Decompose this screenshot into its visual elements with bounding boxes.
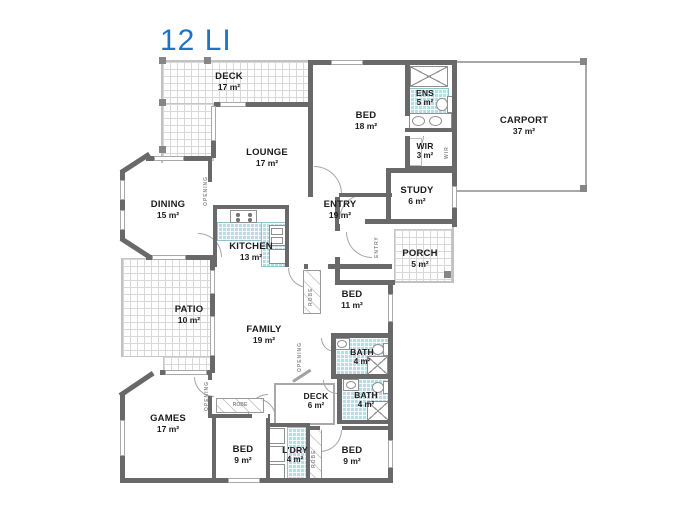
- wall: [212, 414, 216, 483]
- wall: [308, 65, 313, 197]
- kitchen-sink: [271, 228, 283, 235]
- post: [204, 57, 211, 64]
- sink: [412, 116, 425, 126]
- porch-edge: [452, 227, 454, 282]
- opening-text: OPENING: [297, 340, 303, 372]
- room-label-deck17: DECK17 m²: [215, 72, 243, 92]
- sink: [337, 340, 347, 348]
- room-label-carport: CARPORT37 m²: [500, 116, 548, 136]
- robe-text: ROBE: [308, 280, 314, 306]
- window: [120, 180, 125, 200]
- robe-text: ROBE: [311, 442, 317, 468]
- window: [152, 255, 186, 260]
- wall: [405, 136, 410, 170]
- wall: [335, 280, 395, 285]
- plan-title: 12 LI: [160, 24, 232, 58]
- window: [452, 186, 457, 208]
- post: [444, 271, 451, 278]
- sink: [346, 381, 356, 389]
- robe-text: ROBE: [227, 402, 253, 408]
- shower: [410, 66, 448, 87]
- door-swing: [320, 430, 342, 452]
- post: [580, 58, 587, 65]
- room-label-bath1: BATH4 m²: [350, 348, 374, 366]
- room-label-bath2: BATH4 m²: [354, 391, 378, 409]
- wall: [405, 128, 452, 132]
- window: [331, 60, 363, 65]
- room-label-ens: ENS5 m²: [416, 89, 434, 107]
- room-label-bed11: BED11 m²: [341, 290, 363, 310]
- door-gap: [335, 231, 340, 257]
- wall: [331, 338, 336, 378]
- post: [159, 146, 166, 153]
- wall: [266, 423, 310, 427]
- wall: [285, 209, 289, 267]
- room-label-games: GAMES17 m²: [150, 414, 186, 434]
- window: [120, 210, 125, 230]
- window: [210, 270, 215, 294]
- window: [154, 156, 184, 161]
- room-label-deck6: DECK6 m²: [304, 392, 329, 410]
- room-label-kitchen: KITCHEN13 m²: [229, 242, 273, 262]
- window: [120, 420, 125, 456]
- wall: [386, 168, 452, 173]
- wall: [211, 140, 216, 158]
- door-gap: [308, 264, 328, 269]
- wall: [213, 209, 217, 267]
- door-gap: [313, 193, 339, 197]
- post: [580, 185, 587, 192]
- floor-plan: 12 LI: [0, 0, 690, 517]
- wall: [405, 63, 410, 116]
- bay-wall: [120, 152, 151, 175]
- deck-edge: [161, 60, 311, 62]
- door-gap: [252, 414, 268, 418]
- bay-wall: [120, 236, 151, 259]
- room-label-entry: ENTRY19 m²: [324, 200, 357, 220]
- room-label-patio: PATIO10 m²: [175, 305, 204, 325]
- wall: [337, 420, 391, 424]
- entry-hall-text: ENTRY: [374, 232, 380, 258]
- room-label-lounge: LOUNGE17 m²: [246, 148, 288, 168]
- room-label-porch: PORCH5 m²: [402, 249, 437, 269]
- post: [159, 57, 166, 64]
- games-bay-wall: [119, 371, 155, 398]
- opening-text: OPENING: [204, 377, 210, 411]
- window: [220, 102, 246, 107]
- wall: [331, 333, 391, 338]
- window: [165, 370, 207, 375]
- stove: [230, 210, 257, 223]
- room-label-bed18: BED18 m²: [355, 111, 377, 131]
- window: [210, 316, 215, 356]
- room-label-study: STUDY6 m²: [400, 186, 433, 206]
- sink: [429, 116, 442, 126]
- wir-text: WIR: [444, 139, 450, 159]
- room-label-bed9-left: BED9 m²: [233, 445, 254, 465]
- window: [228, 478, 260, 483]
- toilet: [436, 98, 448, 111]
- window: [211, 106, 216, 141]
- wall: [213, 205, 289, 209]
- window: [388, 294, 393, 322]
- room-label-wir: WIR3 m²: [416, 142, 433, 160]
- laundry-appliance: [269, 428, 285, 444]
- room-label-ldry: L'DRY4 m²: [282, 446, 308, 464]
- deck-tiles: [162, 103, 214, 161]
- porch-edge: [394, 281, 454, 283]
- door-swing: [346, 232, 372, 258]
- laundry-tub: [269, 464, 285, 479]
- room-label-bed9-right: BED9 m²: [342, 446, 363, 466]
- opening-text: OPENING: [203, 170, 209, 206]
- room-label-dining: DINING15 m²: [151, 200, 185, 220]
- patio-edge: [121, 258, 123, 357]
- post: [159, 99, 166, 106]
- room-label-family: FAMILY19 m²: [246, 325, 281, 345]
- door-swing: [314, 166, 342, 194]
- door-gap: [320, 426, 342, 430]
- wall: [337, 379, 342, 424]
- window: [388, 440, 393, 468]
